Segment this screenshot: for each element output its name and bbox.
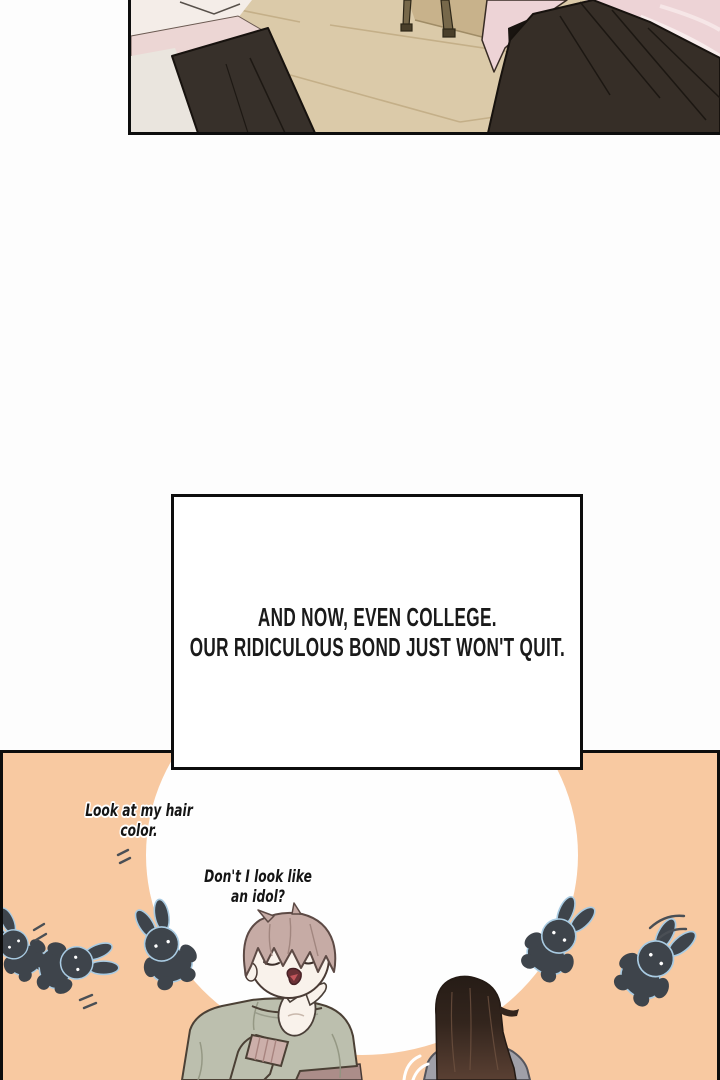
caption-line-2: OUR RIDICULOUS BOND JUST WON'T QUIT. (189, 632, 564, 662)
caption-text: AND NOW, EVEN COLLEGE. OUR RIDICULOUS BO… (189, 602, 564, 662)
speech-2-line-2: an idol? (197, 887, 319, 907)
comic-page: AND NOW, EVEN COLLEGE. OUR RIDICULOUS BO… (0, 0, 720, 1080)
speech-2-line-1: Don't I look like (197, 867, 319, 887)
top-panel-illustration (128, 0, 720, 135)
caption-line-1: AND NOW, EVEN COLLEGE. (189, 602, 564, 632)
caption-box: AND NOW, EVEN COLLEGE. OUR RIDICULOUS BO… (171, 494, 583, 770)
speech-1-line-2: color. (78, 821, 200, 841)
bottom-panel (0, 750, 720, 1080)
person-right-partial (482, 0, 720, 133)
speech-1-line-1: Look at my hair (78, 801, 200, 821)
speech-text-2: Don't I look like an idol? (173, 867, 343, 907)
speech-text-1: Look at my hair color. (54, 801, 224, 841)
top-panel (128, 0, 720, 135)
bottom-panel-illustration (0, 750, 720, 1080)
